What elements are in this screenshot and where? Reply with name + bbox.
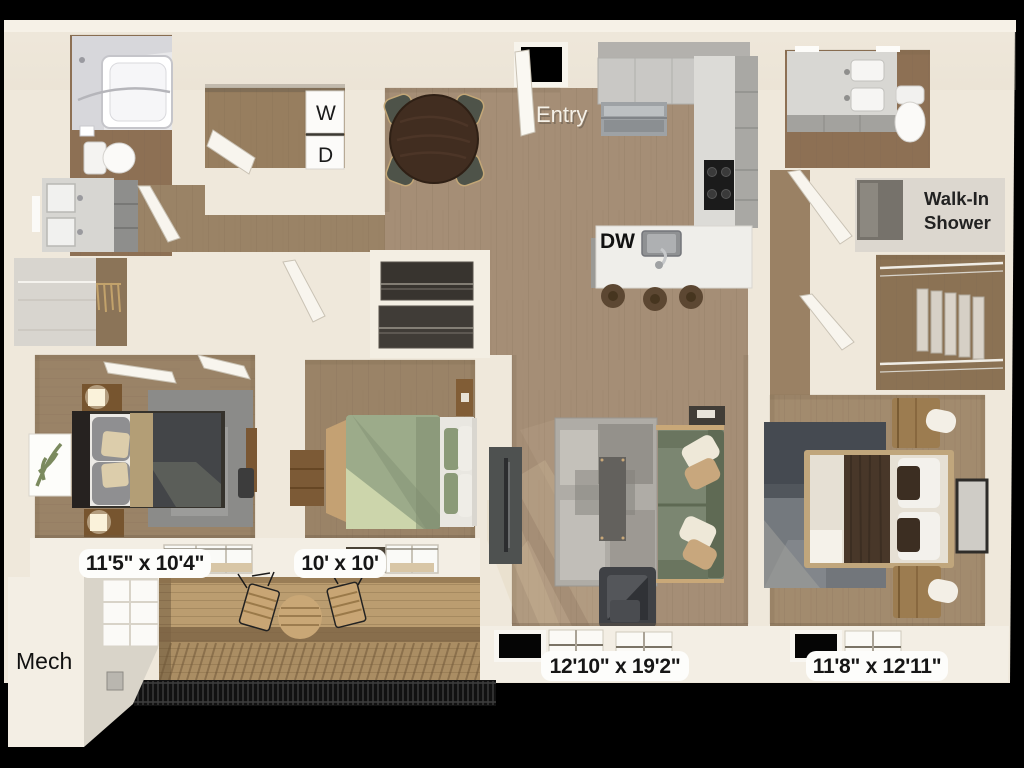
svg-text:W: W <box>316 102 336 125</box>
svg-text:D: D <box>318 144 333 167</box>
svg-text:DW: DW <box>600 230 635 253</box>
svg-text:Shower: Shower <box>924 212 991 233</box>
svg-text:Walk-In: Walk-In <box>924 188 989 209</box>
svg-text:Entry: Entry <box>536 102 587 127</box>
svg-text:11'8" x 12'11": 11'8" x 12'11" <box>813 655 942 678</box>
svg-text:11'5" x 10'4": 11'5" x 10'4" <box>86 552 204 575</box>
svg-text:12'10" x 19'2": 12'10" x 19'2" <box>550 655 681 678</box>
svg-text:10' x 10': 10' x 10' <box>301 552 378 575</box>
svg-text:Mech: Mech <box>16 648 72 674</box>
